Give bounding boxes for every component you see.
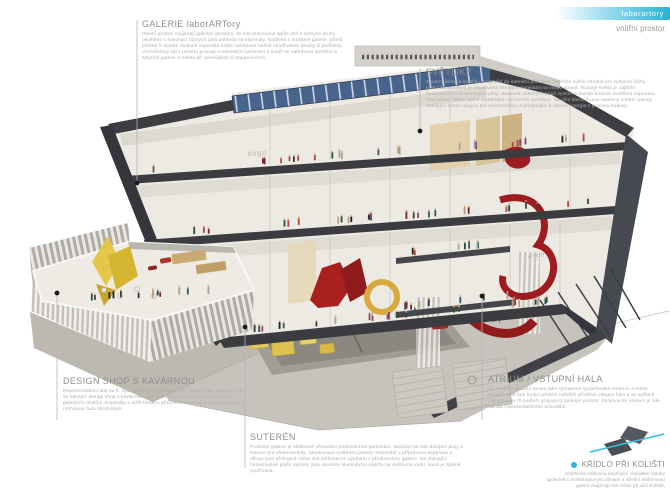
annotation-galerie-title: GALERIE laborARTory xyxy=(142,19,347,29)
presentation-slide: dsgn arch labor ART ory xyxy=(0,0,670,503)
annotation-galerie-body: Hlavní prostor zaujímají galerijní prost… xyxy=(142,32,347,62)
annotation-kridlo: KŘÍDLO PŘI KOLIŠTI Umělecká knihovna dop… xyxy=(545,460,665,490)
annotation-suteren: SUTERÉN Podzemí galerie je většinově věn… xyxy=(250,432,465,475)
annotation-atrium-title: ATRIUM / VSTUPNÍ HALA xyxy=(488,374,666,384)
annotation-atrium: ATRIUM / VSTUPNÍ HALA Již v antice slouž… xyxy=(488,374,666,411)
wing-diagram-icon xyxy=(582,420,666,460)
annotation-suteren-title: SUTERÉN xyxy=(250,432,465,442)
annotation-svetliky-body: Severní šikmina světlíku propouští do in… xyxy=(426,80,666,110)
annotation-design-shop-body: Reprezentativní alej na tř. Kpt. Jaroše … xyxy=(63,389,245,413)
slide-subtitle: vnitřní prostor xyxy=(616,24,665,33)
cyan-bullet-icon xyxy=(571,462,577,468)
annotation-kridlo-body: Umělecká knihovna doplňující charakter s… xyxy=(545,472,665,490)
annotation-galerie: GALERIE laborARTory Hlavní prostor zaují… xyxy=(142,19,347,62)
brand-label: laborartory xyxy=(622,9,670,18)
annotation-atrium-body: Již v antice sloužilo atrium jako význam… xyxy=(488,387,666,411)
annotation-svetliky: SVĚTLÍKY Severní šikmina světlíku propou… xyxy=(426,67,666,110)
annotation-design-shop: DESIGN SHOP S KAVÁRNOU Reprezentativní a… xyxy=(63,376,245,413)
wall-sign-arch: arch xyxy=(528,252,546,260)
annotation-svetliky-title: SVĚTLÍKY xyxy=(426,67,666,77)
annotation-kridlo-title: KŘÍDLO PŘI KOLIŠTI xyxy=(545,460,665,469)
annotation-suteren-body: Podzemí galerie je většinově věnováno po… xyxy=(250,445,465,475)
brand-bar: laborartory xyxy=(556,7,670,20)
annotation-design-shop-title: DESIGN SHOP S KAVÁRNOU xyxy=(63,376,245,386)
